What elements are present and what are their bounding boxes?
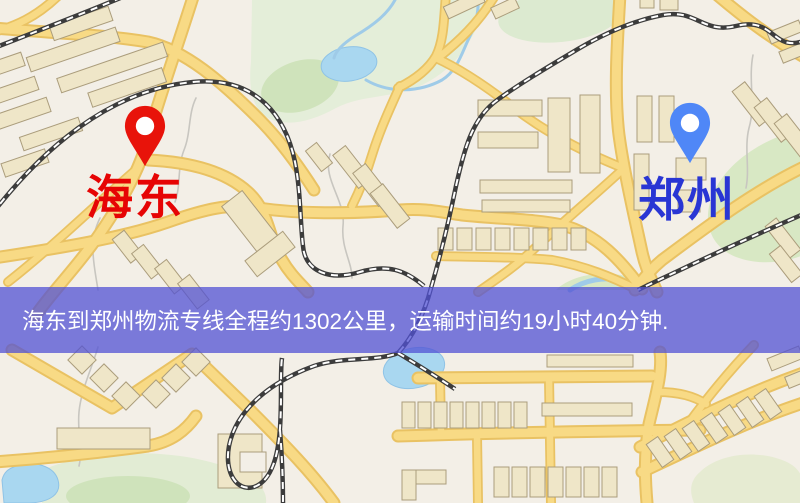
logistics-route-map: 海东 郑州 海东到郑州物流专线全程约1302公里，运输时间约19小时40分钟.: [0, 0, 800, 503]
route-info-banner: 海东到郑州物流专线全程约1302公里，运输时间约19小时40分钟.: [0, 287, 800, 353]
pin-hole: [681, 114, 699, 132]
destination-city-label: 郑州: [638, 176, 736, 223]
pin-body: [125, 106, 165, 166]
destination-pin-icon: [667, 101, 713, 166]
origin-city-label: 海东: [86, 174, 184, 221]
map-canvas: [0, 0, 800, 503]
pin-body: [670, 103, 710, 163]
origin-pin-icon: [122, 104, 168, 169]
pin-hole: [136, 117, 154, 135]
